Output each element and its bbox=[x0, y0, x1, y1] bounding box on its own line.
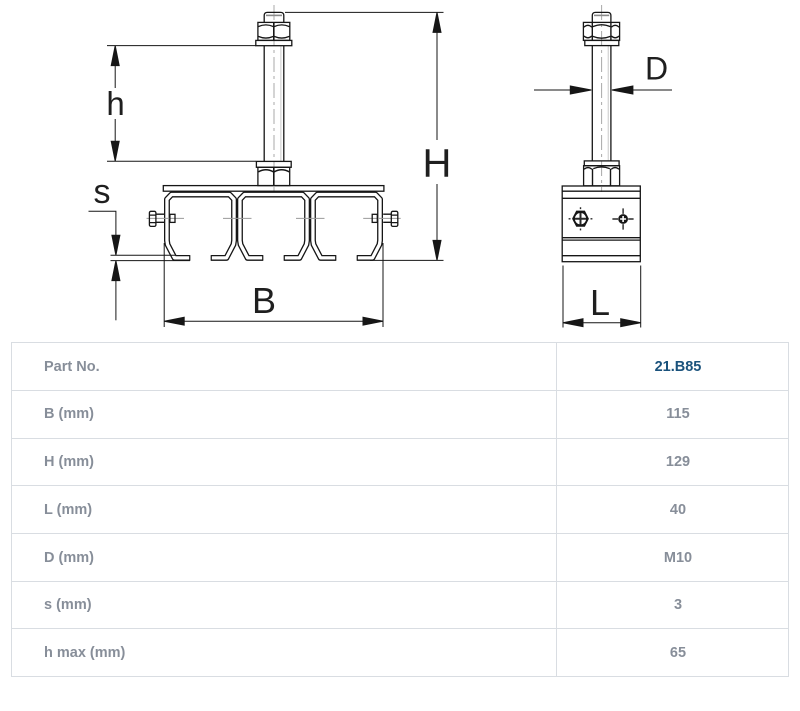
svg-text:h: h bbox=[106, 85, 124, 122]
svg-text:B: B bbox=[252, 280, 276, 321]
svg-text:D: D bbox=[645, 51, 668, 87]
svg-text:L: L bbox=[590, 282, 610, 323]
svg-text:s: s bbox=[94, 173, 111, 211]
svg-text:H: H bbox=[423, 142, 452, 186]
